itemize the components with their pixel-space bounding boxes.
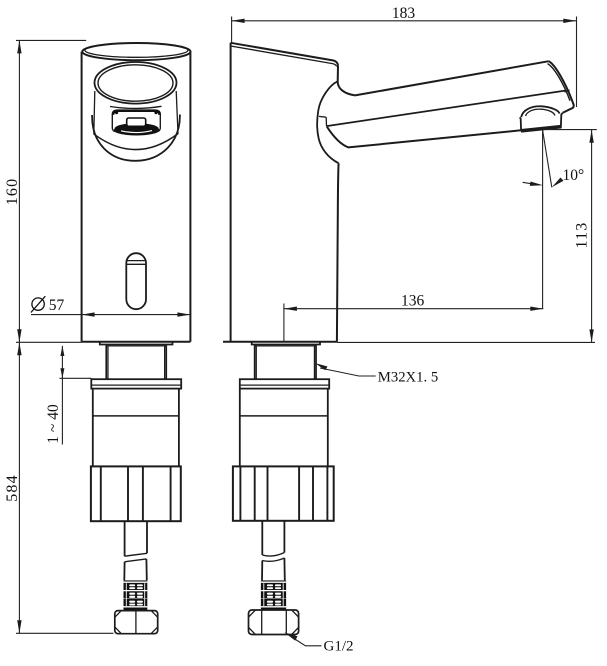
svg-text:113: 113 — [574, 221, 591, 248]
svg-text:10°: 10° — [563, 167, 585, 184]
svg-text:M32X1. 5: M32X1. 5 — [378, 370, 438, 386]
svg-text:584: 584 — [4, 474, 21, 502]
svg-text:160: 160 — [4, 178, 21, 206]
svg-text:136: 136 — [401, 293, 425, 310]
svg-text:57: 57 — [49, 297, 65, 314]
svg-text:1 ~ 40: 1 ~ 40 — [45, 404, 62, 444]
svg-text:G1/2: G1/2 — [324, 639, 354, 655]
svg-text:183: 183 — [392, 5, 416, 22]
